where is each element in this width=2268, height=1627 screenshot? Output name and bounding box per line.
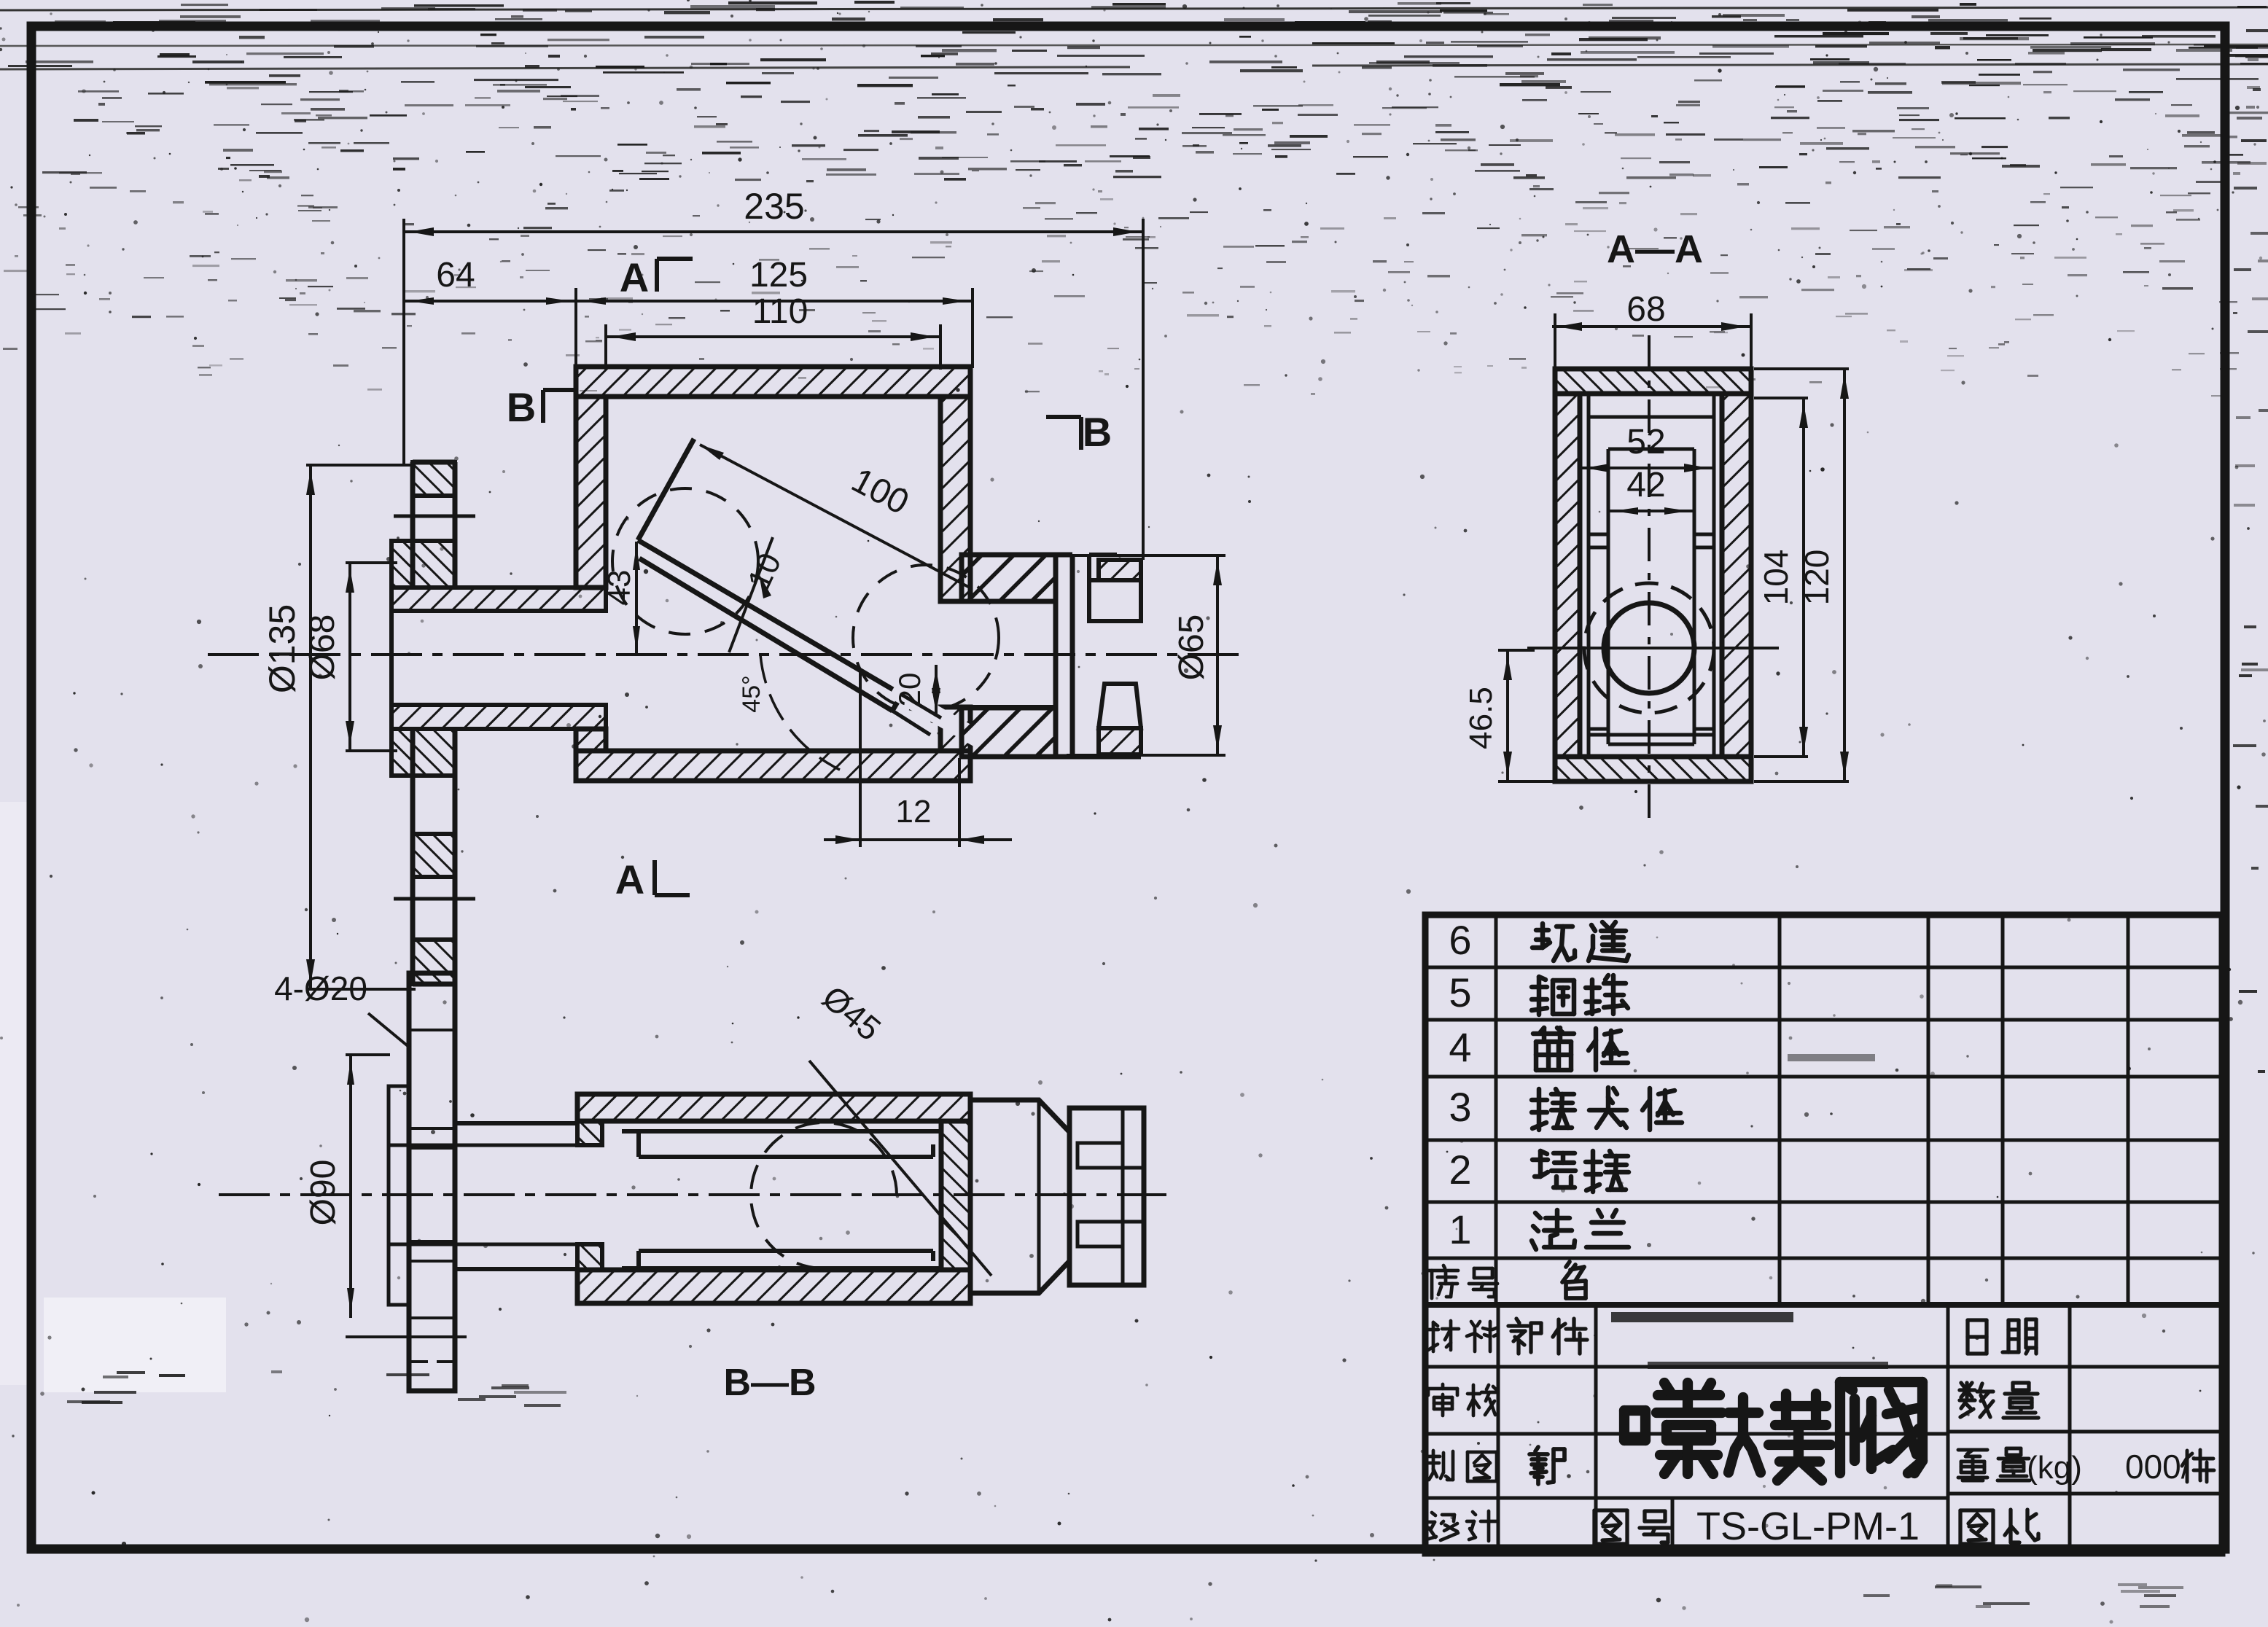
svg-text:68: 68 xyxy=(1626,290,1665,329)
svg-text:Ø65: Ø65 xyxy=(1172,614,1211,681)
svg-text:4: 4 xyxy=(1449,1024,1471,1070)
svg-text:Ø90: Ø90 xyxy=(304,1160,343,1226)
svg-text:TS-GL-PM-1: TS-GL-PM-1 xyxy=(1696,1505,1920,1548)
svg-text:64: 64 xyxy=(436,256,475,294)
svg-text:B—B: B—B xyxy=(723,1362,816,1404)
svg-text:3: 3 xyxy=(1449,1084,1471,1130)
svg-text:125: 125 xyxy=(749,256,808,294)
svg-text:B: B xyxy=(1083,409,1112,455)
svg-text:104: 104 xyxy=(1757,550,1795,606)
svg-text:2: 2 xyxy=(1449,1147,1471,1193)
svg-text:120: 120 xyxy=(1798,550,1836,606)
svg-text:A—A: A—A xyxy=(1607,227,1703,271)
svg-text:43: 43 xyxy=(601,570,637,606)
svg-text:Ø68: Ø68 xyxy=(303,614,342,681)
svg-text:B: B xyxy=(507,384,536,430)
svg-text:235: 235 xyxy=(744,186,804,227)
svg-text:4-Ø20: 4-Ø20 xyxy=(274,969,367,1007)
svg-text:A: A xyxy=(620,254,649,300)
svg-text:12: 12 xyxy=(896,794,932,830)
svg-text:6: 6 xyxy=(1449,917,1471,963)
svg-text:A: A xyxy=(615,857,644,902)
svg-text:20: 20 xyxy=(892,673,927,707)
svg-text:46.5: 46.5 xyxy=(1463,687,1499,749)
svg-text:1: 1 xyxy=(1449,1206,1471,1252)
svg-text:42: 42 xyxy=(1626,466,1665,504)
svg-text:5: 5 xyxy=(1449,969,1471,1015)
svg-text:Ø135: Ø135 xyxy=(262,604,303,693)
svg-text:45°: 45° xyxy=(738,675,765,712)
svg-text:(kg): (kg) xyxy=(2027,1450,2082,1486)
svg-text:52: 52 xyxy=(1626,423,1665,461)
svg-text:110: 110 xyxy=(752,292,808,331)
